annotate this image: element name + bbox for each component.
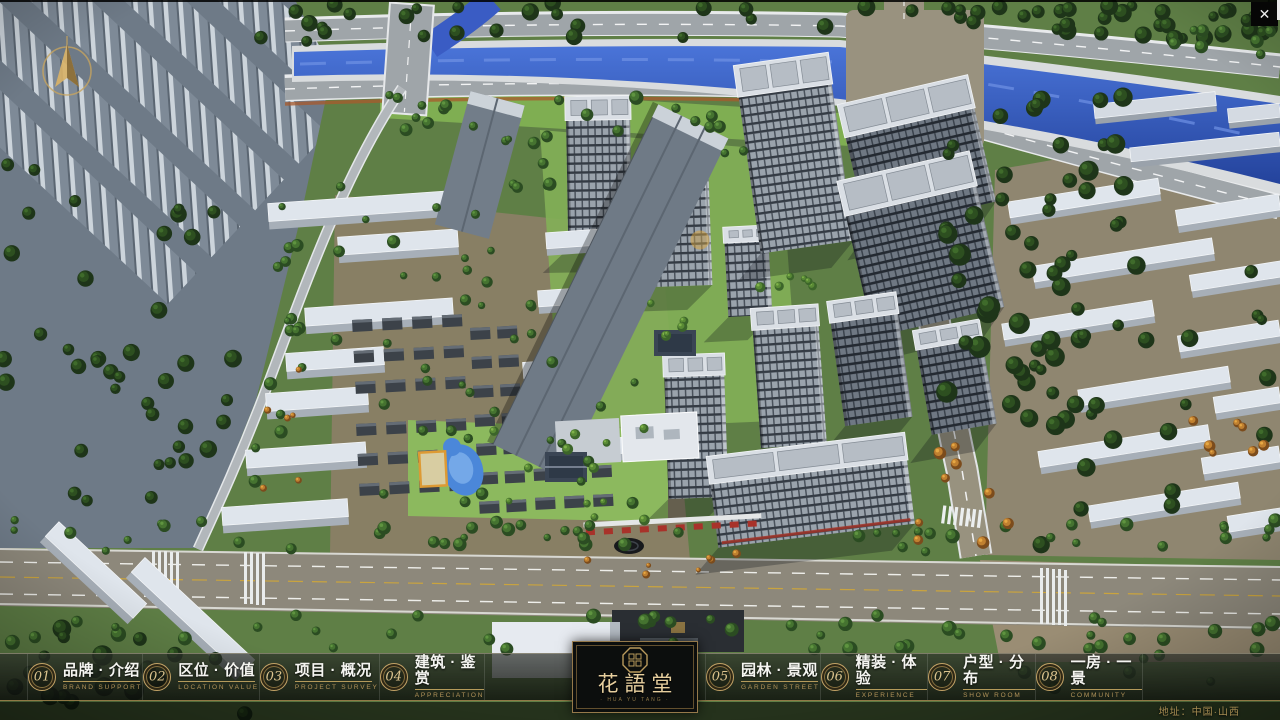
nav-label-en: COMMUNITY xyxy=(1071,692,1127,699)
nav-item-project[interactable]: 03 项目 · 概况 PROJECT SURVEY xyxy=(259,654,379,700)
nav-ring-icon: 07 xyxy=(928,663,956,691)
nav-label-cn: 园林 · 景观 xyxy=(741,663,818,682)
logo-subtitle: · HUA YU TANG · xyxy=(600,697,669,703)
nav-label-cn: 区位 · 价值 xyxy=(178,663,255,682)
nav-label-en: APPRECIATION xyxy=(415,692,485,699)
vignette xyxy=(0,0,1280,720)
nav-item-garden[interactable]: 05 园林 · 景观 GARDEN STREET xyxy=(705,654,820,700)
address-text: 地址：中国·山西 xyxy=(1159,703,1240,718)
nav-ring-icon: 05 xyxy=(706,663,734,691)
nav-label-cn: 项目 · 概况 xyxy=(295,663,372,682)
presentation-screen: ✕ 01 品牌 · 介绍 BRAND SUPPORT 02 区位 · 价值 LO… xyxy=(0,0,1280,720)
project-logo: 花語堂 · HUA YU TANG · xyxy=(572,641,698,713)
seal-icon xyxy=(622,647,648,673)
nav-label-cn: 户型 · 分布 xyxy=(963,655,1034,690)
nav-ring-icon: 01 xyxy=(28,663,56,691)
nav-label-cn: 品牌 · 介绍 xyxy=(63,663,140,682)
compass-icon xyxy=(38,34,96,98)
letterbox-line xyxy=(0,0,1280,2)
nav-label-en: BRAND SUPPORT xyxy=(63,684,142,691)
nav-label-cn: 一房 · 一景 xyxy=(1071,655,1142,690)
close-button[interactable]: ✕ xyxy=(1251,2,1278,26)
nav-item-floorplan[interactable]: 07 户型 · 分布 SHOW ROOM xyxy=(927,654,1034,700)
nav-ring-icon: 02 xyxy=(143,663,171,691)
nav-ring-icon: 06 xyxy=(821,663,849,691)
nav-label-en: SHOW ROOM xyxy=(963,692,1021,699)
logo-title: 花語堂 xyxy=(592,673,679,696)
masterplan-render xyxy=(0,0,1280,720)
nav-label-cn: 精装 · 体验 xyxy=(856,655,927,690)
nav-ring-icon: 03 xyxy=(260,663,288,691)
nav-item-brand[interactable]: 01 品牌 · 介绍 BRAND SUPPORT xyxy=(27,654,142,700)
nav-item-community[interactable]: 08 一房 · 一景 COMMUNITY xyxy=(1035,654,1142,700)
nav-ring-icon: 08 xyxy=(1036,663,1064,691)
nav-label-en: GARDEN STREET xyxy=(741,684,820,691)
nav-label-en: LOCATION VALUE xyxy=(178,684,259,691)
nav-block-left: 01 品牌 · 介绍 BRAND SUPPORT 02 区位 · 价值 LOCA… xyxy=(27,654,485,700)
nav-label-en: PROJECT SURVEY xyxy=(295,684,379,691)
nav-item-architecture[interactable]: 04 建筑 · 鉴赏 APPRECIATION xyxy=(379,654,485,700)
nav-label-en: EXPERIENCE xyxy=(856,692,916,699)
nav-item-interior[interactable]: 06 精装 · 体验 EXPERIENCE xyxy=(820,654,927,700)
nav-block-right: 05 园林 · 景观 GARDEN STREET 06 精装 · 体验 EXPE… xyxy=(705,654,1143,700)
nav-ring-icon: 04 xyxy=(380,663,408,691)
nav-label-cn: 建筑 · 鉴赏 xyxy=(415,655,485,690)
nav-item-location[interactable]: 02 区位 · 价值 LOCATION VALUE xyxy=(142,654,259,700)
